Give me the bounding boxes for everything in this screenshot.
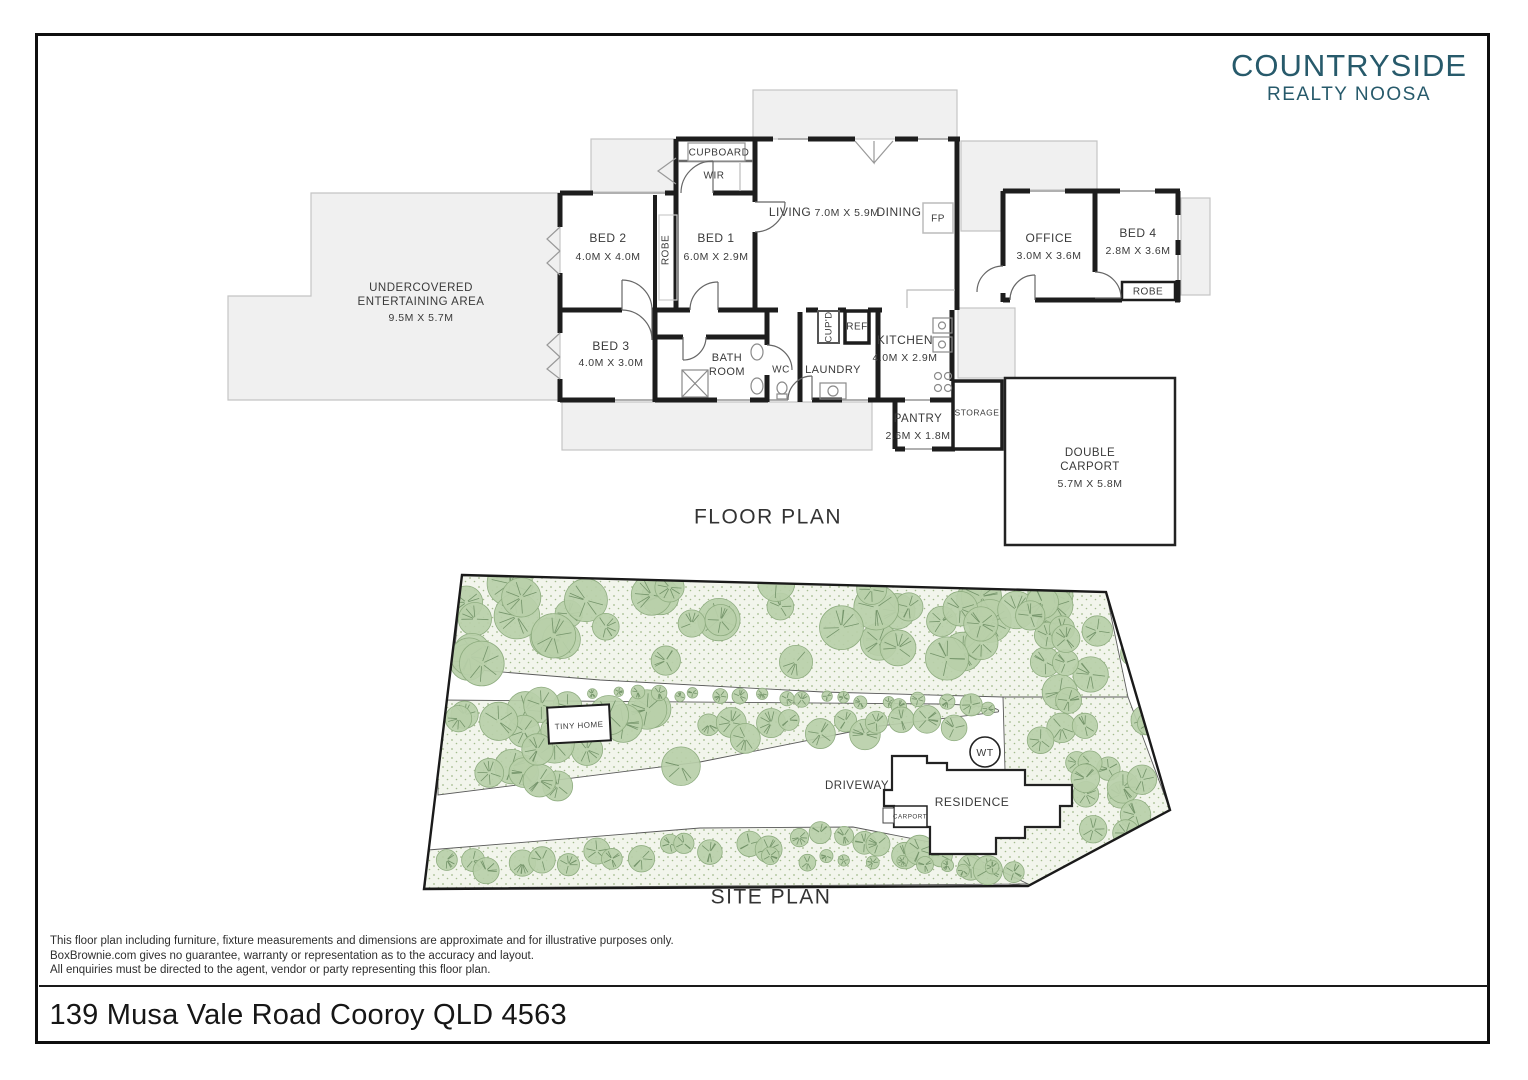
label-entertaining-2: ENTERTAINING AREA — [358, 296, 485, 308]
label-driveway: DRIVEWAY — [825, 780, 889, 792]
label-bed2-dim: 4.0M X 4.0M — [575, 251, 640, 263]
label-kitchen-dim: 4.0M X 2.9M — [872, 352, 937, 364]
label-fireplace: FP — [931, 214, 945, 225]
door-arcs — [622, 161, 1121, 400]
label-bed2: BED 2 — [589, 231, 626, 245]
plan-canvas: CUPBOARD WIR BED 2 4.0M X 4.0M ROBE BED … — [0, 0, 1528, 1080]
label-pantry: PANTRY — [894, 413, 943, 425]
label-bed4-dim: 2.8M X 3.6M — [1105, 245, 1170, 257]
label-carport-2: CARPORT — [1060, 461, 1120, 473]
property-address: 139 Musa Vale Road Cooroy QLD 4563 — [39, 999, 567, 1032]
disclaimer-line-2: BoxBrownie.com gives no guarantee, warra… — [50, 949, 674, 964]
label-wir: WIR — [704, 171, 725, 182]
label-bed4: BED 4 — [1119, 226, 1156, 240]
floor-plan-title: FLOOR PLAN — [694, 506, 842, 529]
disclaimer-line-1: This floor plan including furniture, fix… — [50, 934, 674, 949]
label-kitchen: KITCHEN — [877, 333, 933, 347]
label-carport-dim: 5.7M X 5.8M — [1057, 478, 1122, 490]
label-storage: STORAGE — [955, 407, 1000, 417]
label-living: LIVING — [769, 205, 811, 219]
label-robe-bed2: ROBE — [661, 235, 672, 265]
brand-tagline: REALTY NOOSA — [1194, 84, 1504, 106]
label-office-dim: 3.0M X 3.6M — [1016, 250, 1081, 262]
brand-name: COUNTRYSIDE — [1194, 50, 1504, 81]
label-residence: RESIDENCE — [935, 795, 1010, 809]
disclaimer-line-3: All enquiries must be directed to the ag… — [50, 963, 674, 978]
label-pantry-dim: 2.6M X 1.8M — [885, 430, 950, 442]
label-wt: WT — [976, 747, 993, 759]
label-entertaining-1: UNDERCOVERED — [369, 282, 473, 294]
tiny-home: TINY HOME — [547, 704, 611, 743]
label-bathroom-2: ROOM — [709, 366, 745, 378]
brand-logo: COUNTRYSIDE REALTY NOOSA — [1194, 50, 1504, 106]
label-bed3: BED 3 — [592, 339, 629, 353]
label-bed3-dim: 4.0M X 3.0M — [578, 357, 643, 369]
label-bathroom-1: BATH — [712, 352, 743, 364]
label-cupboard: CUPBOARD — [689, 148, 750, 159]
label-ref: REF — [846, 322, 868, 333]
site-plan-title: SITE PLAN — [711, 886, 832, 909]
disclaimer: This floor plan including furniture, fix… — [50, 934, 674, 978]
label-site-carport: CARPORT — [893, 814, 927, 821]
label-wc: WC — [772, 365, 790, 376]
label-bed1-dim: 6.0M X 2.9M — [683, 251, 748, 263]
label-office: OFFICE — [1026, 231, 1073, 245]
label-entertaining-dim: 9.5M X 5.7M — [388, 312, 453, 324]
label-bed1: BED 1 — [697, 231, 734, 245]
label-laundry: LAUNDRY — [805, 364, 861, 376]
label-dining: DINING — [877, 205, 922, 219]
address-band: 139 Musa Vale Road Cooroy QLD 4563 — [39, 985, 1488, 1043]
label-carport-1: DOUBLE — [1065, 447, 1115, 459]
label-robe-bed4: ROBE — [1133, 287, 1163, 298]
label-living-dim: 7.0M X 5.9M — [814, 207, 879, 219]
label-cupd: CUP'D — [824, 311, 835, 342]
floor-plan: CUPBOARD WIR BED 2 4.0M X 4.0M ROBE BED … — [228, 90, 1210, 545]
site-plan: TINY HOME WT DRIVEWAY RESIDENCE CARPORT … — [424, 561, 1170, 909]
